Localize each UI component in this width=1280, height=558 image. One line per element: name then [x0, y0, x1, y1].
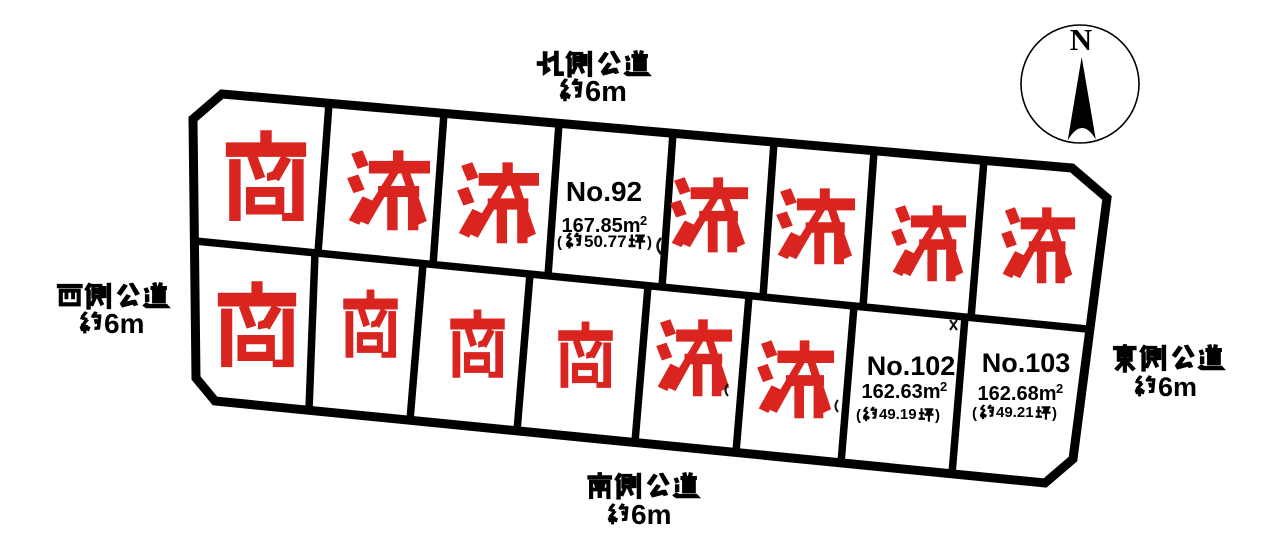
svg-text:6m: 6m	[104, 308, 144, 339]
svg-text:6m: 6m	[631, 499, 671, 530]
svg-text:6m: 6m	[585, 76, 627, 108]
svg-text:): )	[647, 234, 652, 251]
svg-text:162.68m: 162.68m	[978, 383, 1057, 405]
svg-text:No.92: No.92	[566, 176, 642, 207]
svg-text:2: 2	[940, 379, 947, 394]
svg-text:2: 2	[1056, 381, 1063, 396]
svg-text:49.21: 49.21	[996, 404, 1034, 421]
svg-text:49.19: 49.19	[879, 406, 917, 423]
svg-text:2: 2	[640, 213, 647, 228]
svg-text:(: (	[972, 405, 977, 422]
svg-text:(: (	[557, 234, 562, 251]
svg-text:162.63m: 162.63m	[862, 381, 941, 403]
svg-text:No.102: No.102	[867, 351, 956, 381]
svg-text:No.103: No.103	[982, 348, 1071, 378]
svg-text:N: N	[1070, 22, 1092, 57]
svg-text:6m: 6m	[1158, 372, 1197, 402]
svg-text:): )	[935, 407, 940, 424]
svg-text:50.77: 50.77	[584, 232, 627, 251]
svg-text:): )	[1052, 405, 1057, 422]
svg-text:(: (	[856, 407, 861, 424]
